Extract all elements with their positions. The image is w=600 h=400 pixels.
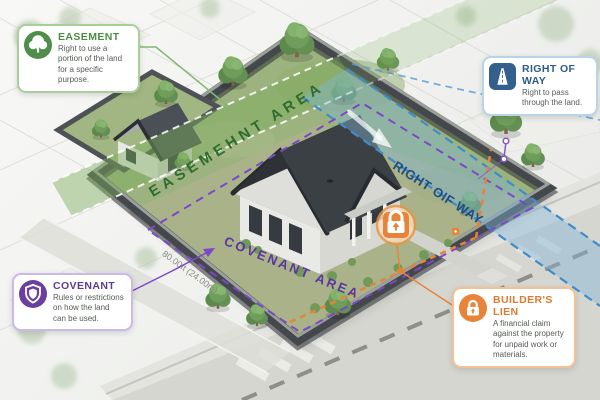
covenant-title: COVENANT — [53, 280, 124, 292]
builders-lien-callout: BUILDER'S LIEN A financial claim against… — [452, 287, 576, 368]
lien-lock-marker — [377, 206, 415, 244]
easement-callout: EASEMENT Right to use a portion of the l… — [17, 24, 140, 93]
builders-lien-title: BUILDER'S LIEN — [493, 294, 567, 318]
easement-title: EASEMENT — [58, 31, 131, 43]
easement-description: Right to use a portion of the land for a… — [58, 44, 131, 86]
covenant-description: Rules or restrictions on how the land ca… — [53, 293, 124, 324]
right-of-way-description: Right to pass through the land. — [522, 88, 589, 109]
covenant-callout: COVENANT Rules or restrictions on how th… — [12, 273, 133, 331]
lock-icon — [459, 294, 487, 322]
right-of-way-title: RIGHT OF WAY — [522, 63, 589, 87]
bird — [327, 179, 333, 182]
shield-icon — [19, 280, 47, 308]
property-rights-infographic: EASEMEHNT AREA RIGHT OIF WAY COVENANT AR… — [0, 0, 600, 400]
builders-lien-description: A financial claim against the property f… — [493, 319, 567, 361]
right-of-way-callout: RIGHT OF WAY Right to pass through the l… — [482, 56, 598, 116]
tree-icon — [24, 31, 52, 59]
road-icon — [489, 63, 516, 90]
